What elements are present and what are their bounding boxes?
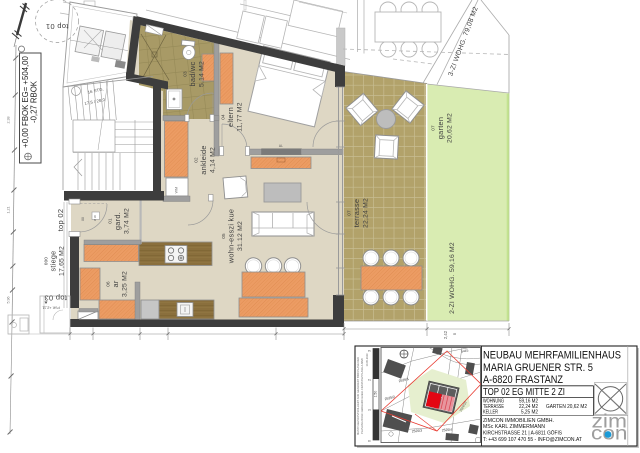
svg-text:top 01: top 01 [46, 22, 69, 31]
svg-text:KIRCHSTRASSE 21 | A-6811 GÖFIS: KIRCHSTRASSE 21 | A-6811 GÖFIS [483, 430, 563, 437]
svg-text:A-6820 FRASTANZ: A-6820 FRASTANZ [483, 374, 563, 386]
svg-text:1: 1 [368, 409, 372, 411]
svg-text:PoK +2,11: PoK +2,11 [42, 306, 60, 310]
svg-text:MSc KARL ZIMMERMANN: MSc KARL ZIMMERMANN [483, 424, 545, 430]
svg-text:-0,27 RBOK: -0,27 RBOK [30, 80, 39, 123]
svg-text:TOP 02 EG MITTE 2 ZI: TOP 02 EG MITTE 2 ZI [483, 387, 565, 398]
svg-text:31.12 M2: 31.12 M2 [237, 221, 244, 251]
svg-text:top 02: top 02 [56, 209, 65, 232]
svg-text:2,42: 2,42 [443, 330, 448, 339]
svg-text:ar: ar [111, 280, 120, 287]
svg-text:4,14 M2: 4,14 M2 [210, 147, 217, 173]
svg-text:5,25 M2: 5,25 M2 [521, 410, 538, 416]
svg-text:2,38: 2,38 [7, 117, 11, 124]
svg-text:01: 01 [107, 218, 112, 224]
svg-text:KELLER: KELLER [483, 410, 498, 416]
svg-text:Ø 30: Ø 30 [93, 215, 97, 222]
svg-text:ZIMCON IMMOBILIEN GMBH.: ZIMCON IMMOBILIEN GMBH. [483, 418, 554, 424]
svg-text:1,21: 1,21 [7, 207, 11, 214]
svg-text:2: 2 [368, 379, 372, 381]
svg-text:wohn-esszi kue: wohn-esszi kue [227, 209, 236, 264]
svg-text:10.05.2023: 10.05.2023 [365, 353, 369, 367]
svg-text:03: 03 [182, 71, 187, 77]
svg-text:11,77 M2: 11,77 M2 [237, 102, 244, 131]
svg-text:20,62 M2: 20,62 M2 [447, 113, 454, 143]
svg-text:07: 07 [346, 210, 351, 216]
svg-text:06: 06 [105, 281, 110, 287]
svg-text:0: 0 [368, 440, 372, 442]
svg-text:3,74 M2: 3,74 M2 [124, 208, 131, 234]
svg-text:04: 04 [220, 114, 225, 120]
svg-text:ankleide: ankleide [199, 145, 208, 175]
svg-text:gard.: gard. [113, 212, 122, 230]
svg-text:5.14 M2: 5.14 M2 [199, 61, 206, 87]
svg-text:MARIA GRUENER STR. 5: MARIA GRUENER STR. 5 [483, 362, 593, 374]
svg-text:17,65 M2: 17,65 M2 [59, 246, 66, 276]
svg-text:top 03: top 03 [44, 294, 67, 303]
svg-text:07: 07 [430, 125, 435, 131]
svg-text:MASST.GEZ.KONTROLLIERT AND GEA: MASST.GEZ.KONTROLLIERT AND GEANDERT BZW.… [356, 357, 360, 435]
svg-text:terrasse: terrasse [352, 199, 361, 228]
svg-text:3,25 M2: 3,25 M2 [122, 271, 129, 297]
svg-text:T: +43 699 107 470 55 - INFO@Z: T: +43 699 107 470 55 - INFO@ZIMCON.AT [483, 437, 582, 443]
svg-text:AL: AL [279, 144, 283, 148]
svg-text:garten: garten [436, 117, 445, 139]
svg-text:5,96: 5,96 [7, 297, 11, 304]
svg-text:eltern: eltern [226, 107, 235, 127]
svg-text:3: 3 [368, 350, 372, 352]
svg-text:88: 88 [81, 217, 85, 221]
svg-text:02: 02 [193, 157, 198, 163]
svg-text:05: 05 [221, 233, 226, 239]
svg-text:1:50: 1:50 [374, 391, 378, 398]
svg-text:GARTEN 20,62 M2: GARTEN 20,62 M2 [546, 404, 587, 410]
svg-text:bad/wc: bad/wc [188, 61, 197, 86]
svg-text:PLANUNG WOLF GERHARD GmbH. FRA: PLANUNG WOLF GERHARD GmbH. FRASTANZ PLAN… [360, 358, 364, 434]
svg-text:stiege: stiege [49, 251, 58, 272]
svg-text:WM: WM [175, 187, 179, 194]
svg-text:22,24 M2: 22,24 M2 [363, 198, 370, 228]
svg-text:2-ZI WOHG. 59,16 M2: 2-ZI WOHG. 59,16 M2 [449, 242, 456, 314]
svg-text:NEUBAU MEHRFAMILIENHAUS: NEUBAU MEHRFAMILIENHAUS [483, 350, 621, 362]
